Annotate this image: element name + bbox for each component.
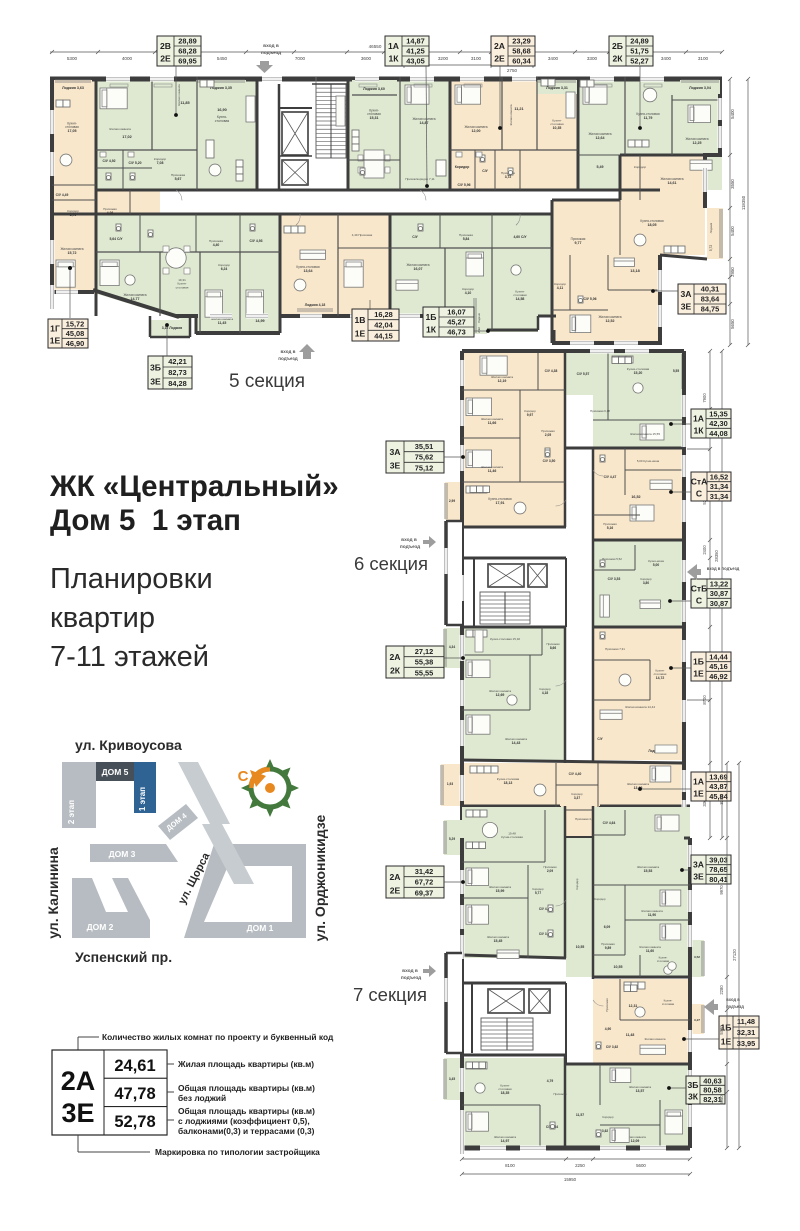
svg-text:ДОМ 5: ДОМ 5: [102, 767, 129, 777]
svg-text:3Е: 3Е: [693, 872, 704, 882]
svg-text:18,35: 18,35: [501, 1091, 510, 1095]
svg-text:67,72: 67,72: [415, 878, 434, 887]
svg-text:11,66: 11,66: [488, 421, 497, 425]
svg-text:31,34: 31,34: [710, 482, 729, 491]
svg-text:46,92: 46,92: [709, 672, 728, 681]
svg-text:С/У 4,93: С/У 4,93: [249, 239, 262, 243]
svg-text:39,03: 39,03: [709, 855, 728, 864]
svg-text:вход в: вход в: [401, 538, 417, 543]
svg-text:24,89: 24,89: [630, 37, 649, 46]
svg-text:Общая площадь квартиры (кв.м): Общая площадь квартиры (кв.м): [178, 1083, 315, 1093]
svg-text:16,52: 16,52: [710, 472, 729, 481]
svg-text:52,78: 52,78: [114, 1113, 155, 1131]
svg-text:2Е: 2Е: [390, 886, 401, 896]
svg-text:15,35: 15,35: [709, 409, 728, 418]
svg-text:6,09: 6,09: [604, 925, 611, 929]
svg-text:Успенский пр.: Успенский пр.: [75, 949, 172, 965]
svg-text:3600: 3600: [361, 56, 372, 61]
svg-text:Коридор: Коридор: [575, 878, 579, 889]
svg-text:15,72: 15,72: [66, 319, 85, 328]
svg-text:3,45: 3,45: [449, 1077, 455, 1081]
svg-text:С: С: [696, 489, 702, 499]
svg-text:7-11 этажей: 7-11 этажей: [50, 641, 209, 673]
svg-text:3200: 3200: [438, 56, 449, 61]
svg-text:подъезд: подъезд: [401, 976, 421, 981]
svg-text:75,62: 75,62: [415, 453, 434, 462]
svg-text:5,55: 5,55: [673, 369, 679, 373]
svg-text:9,97: 9,97: [527, 413, 534, 417]
svg-text:4,79: 4,79: [547, 1079, 554, 1083]
svg-text:ЖК «Центральный»: ЖК «Центральный»: [49, 470, 339, 503]
svg-text:11,85: 11,85: [180, 101, 189, 105]
svg-text:2,05: 2,05: [545, 433, 552, 437]
svg-text:7,08: 7,08: [157, 161, 164, 165]
svg-text:Общая площадь квартиры (кв.м): Общая площадь квартиры (кв.м): [178, 1106, 315, 1116]
svg-text:5780: 5780: [719, 1025, 724, 1035]
svg-text:10,55: 10,55: [614, 965, 623, 969]
svg-text:1К: 1К: [426, 325, 437, 335]
svg-text:69,37: 69,37: [415, 888, 434, 897]
svg-text:41,25: 41,25: [406, 47, 425, 56]
svg-text:С/У 5,20: С/У 5,20: [128, 161, 141, 165]
svg-text:столовая: столовая: [215, 119, 230, 123]
svg-text:3А: 3А: [693, 859, 704, 869]
svg-text:подъезд: подъезд: [278, 356, 298, 361]
svg-text:84,75: 84,75: [701, 305, 720, 314]
svg-text:2Е: 2Е: [494, 54, 505, 64]
svg-text:3100: 3100: [698, 56, 709, 61]
svg-text:12,00: 12,00: [472, 129, 481, 133]
svg-text:84,28: 84,28: [168, 379, 187, 388]
svg-text:12,31: 12,31: [629, 1004, 638, 1008]
svg-text:17,91: 17,91: [496, 501, 505, 505]
svg-text:15,45: 15,45: [494, 939, 503, 943]
svg-text:С/У 4,47: С/У 4,47: [604, 475, 617, 479]
svg-text:118350: 118350: [741, 195, 746, 210]
svg-text:51,75: 51,75: [630, 47, 649, 56]
svg-text:Прихожая: Прихожая: [605, 998, 609, 1012]
svg-text:80,41: 80,41: [709, 875, 728, 884]
svg-text:1Б: 1Б: [426, 312, 437, 322]
svg-text:3300: 3300: [719, 795, 724, 805]
svg-text:Прихожая 6,18: Прихожая 6,18: [590, 409, 610, 413]
svg-text:14,72: 14,72: [656, 676, 665, 680]
svg-text:1Е: 1Е: [355, 329, 366, 339]
svg-text:4,40: 4,40: [213, 243, 220, 247]
svg-text:11,90: 11,90: [648, 913, 656, 917]
svg-text:27120: 27120: [732, 949, 737, 961]
svg-text:14,87: 14,87: [406, 37, 425, 46]
svg-text:1А: 1А: [693, 413, 704, 423]
svg-text:4,10: 4,10: [465, 291, 472, 295]
svg-text:80,58: 80,58: [703, 1086, 722, 1095]
svg-text:Лоджия 3,63: Лоджия 3,63: [62, 86, 84, 90]
svg-text:1Е: 1Е: [693, 669, 704, 679]
svg-text:С/У: С/У: [412, 235, 418, 239]
svg-text:С/У 4,40: С/У 4,40: [569, 772, 582, 776]
svg-text:15,53: 15,53: [644, 869, 653, 873]
svg-text:5,00 Кухня-ниша: 5,00 Кухня-ниша: [637, 459, 660, 463]
svg-text:столовая: столовая: [662, 1002, 675, 1006]
svg-text:10,55: 10,55: [576, 945, 585, 949]
svg-text:8,66: 8,66: [550, 646, 556, 650]
svg-text:11,48: 11,48: [737, 1017, 755, 1026]
svg-text:3,10 Лоджия: 3,10 Лоджия: [162, 326, 183, 330]
svg-text:69,95: 69,95: [178, 57, 197, 66]
svg-text:2А: 2А: [494, 41, 505, 51]
svg-text:8700: 8700: [702, 695, 707, 705]
svg-text:5,00: 5,00: [653, 563, 660, 567]
svg-text:Лоджия 3,31: Лоджия 3,31: [546, 86, 568, 90]
svg-text:12,09: 12,09: [631, 1139, 640, 1143]
svg-text:Кухня-столовая 15,32: Кухня-столовая 15,32: [490, 637, 520, 641]
svg-text:Лоджия: Лоджия: [709, 222, 713, 233]
svg-text:13,69: 13,69: [709, 772, 728, 781]
svg-text:30,87: 30,87: [710, 589, 729, 598]
svg-text:2280: 2280: [719, 985, 724, 995]
svg-text:45,27: 45,27: [447, 318, 466, 327]
svg-text:СтА: СтА: [691, 476, 708, 486]
svg-text:столовая: столовая: [176, 285, 189, 289]
svg-text:16,07: 16,07: [414, 267, 423, 271]
svg-text:2К: 2К: [612, 54, 623, 64]
svg-text:4,90: 4,90: [605, 1027, 612, 1031]
svg-text:4,49 Прихожая: 4,49 Прихожая: [352, 233, 373, 237]
svg-text:Прихож/коридор 7,11: Прихож/коридор 7,11: [405, 177, 435, 181]
svg-text:47,78: 47,78: [114, 1085, 155, 1103]
svg-text:3400: 3400: [661, 56, 672, 61]
svg-text:С/У 5,06: С/У 5,06: [583, 297, 596, 301]
svg-text:вход в: вход в: [280, 349, 295, 354]
svg-text:Прихожая: Прихожая: [554, 1092, 567, 1096]
svg-text:подъезд: подъезд: [400, 545, 420, 550]
svg-text:1А: 1А: [388, 41, 399, 51]
svg-text:ул. Кривоусова: ул. Кривоусова: [75, 737, 182, 753]
svg-text:23,29: 23,29: [512, 37, 531, 46]
svg-text:С/У 4,38: С/У 4,38: [545, 369, 558, 373]
svg-text:3Б: 3Б: [150, 362, 161, 372]
svg-text:7900: 7900: [702, 393, 707, 403]
svg-text:15,31: 15,31: [370, 116, 379, 120]
svg-text:3Е: 3Е: [150, 377, 161, 387]
svg-text:1К: 1К: [388, 54, 399, 64]
svg-text:ДОМ 1: ДОМ 1: [247, 923, 274, 933]
svg-text:15,72: 15,72: [68, 251, 77, 255]
svg-text:2К: 2К: [390, 666, 401, 676]
svg-text:2750: 2750: [507, 68, 518, 73]
svg-text:3,52: 3,52: [694, 955, 700, 959]
svg-text:5950: 5950: [719, 1095, 724, 1105]
svg-text:14,43: 14,43: [512, 741, 521, 745]
svg-text:Коридор: Коридор: [602, 1115, 613, 1119]
svg-text:13,57: 13,57: [636, 1089, 645, 1093]
svg-text:С: С: [238, 768, 249, 785]
svg-text:3,72: 3,72: [505, 175, 512, 179]
svg-text:5,84: 5,84: [463, 237, 470, 241]
svg-text:3400: 3400: [548, 56, 559, 61]
svg-text:6,24: 6,24: [221, 267, 228, 271]
svg-text:7 секция: 7 секция: [353, 984, 427, 1005]
svg-text:11,48: 11,48: [626, 1033, 635, 1037]
svg-text:Лоджия 3,04: Лоджия 3,04: [689, 86, 711, 90]
svg-text:16,90: 16,90: [217, 108, 227, 112]
svg-text:2В: 2В: [160, 41, 171, 51]
svg-text:43,05: 43,05: [406, 57, 425, 66]
svg-text:40,31: 40,31: [701, 285, 720, 294]
svg-text:Лоджия: Лоджия: [477, 313, 481, 323]
svg-text:Лоджия 3,60: Лоджия 3,60: [363, 87, 385, 91]
svg-text:С/У 5,96: С/У 5,96: [457, 183, 470, 187]
svg-text:18,13: 18,13: [504, 781, 513, 785]
svg-text:1Е: 1Е: [50, 336, 61, 346]
svg-text:Количество жилых комнат по про: Количество жилых комнат по проекту и бук…: [102, 1032, 334, 1042]
svg-text:5400: 5400: [730, 226, 735, 236]
svg-text:14,61: 14,61: [668, 181, 677, 185]
svg-text:46550: 46550: [369, 44, 382, 49]
svg-text:14,58: 14,58: [516, 297, 525, 301]
svg-text:3300: 3300: [587, 56, 598, 61]
svg-text:4,26: 4,26: [107, 211, 114, 215]
svg-text:9,77: 9,77: [575, 241, 582, 245]
svg-text:вход в: вход в: [263, 44, 279, 49]
svg-text:44,08: 44,08: [709, 429, 728, 438]
svg-text:без лоджий: без лоджий: [178, 1093, 226, 1103]
svg-text:5300: 5300: [67, 56, 78, 61]
svg-text:3Е: 3Е: [390, 461, 401, 471]
svg-text:Жилая комната: Жилая комната: [645, 1037, 666, 1041]
svg-text:28350: 28350: [714, 550, 719, 562]
svg-text:3Б: 3Б: [688, 1080, 699, 1090]
svg-text:16,07: 16,07: [447, 308, 466, 317]
svg-text:8100: 8100: [505, 1163, 515, 1168]
svg-text:Планировки: Планировки: [50, 563, 213, 595]
svg-text:2250: 2250: [575, 1163, 585, 1168]
svg-text:квартир: квартир: [50, 602, 155, 634]
svg-text:балконами(0,3) и террасами (0,: балконами(0,3) и террасами (0,3): [178, 1126, 315, 1136]
svg-text:2А: 2А: [390, 652, 401, 662]
svg-text:46,90: 46,90: [66, 339, 85, 348]
svg-text:42,30: 42,30: [709, 419, 728, 428]
svg-text:2,09: 2,09: [547, 869, 553, 873]
svg-text:4,18: 4,18: [542, 691, 548, 695]
svg-text:2Е: 2Е: [160, 54, 171, 64]
svg-text:82,73: 82,73: [168, 368, 187, 377]
svg-text:С/У 3,50: С/У 3,50: [543, 459, 556, 463]
svg-text:31,42: 31,42: [415, 867, 434, 876]
svg-text:11,57: 11,57: [576, 1113, 584, 1117]
svg-text:40,63: 40,63: [703, 1076, 722, 1085]
svg-text:13,22: 13,22: [710, 579, 729, 588]
svg-text:С/У 4,92: С/У 4,92: [102, 159, 115, 163]
svg-text:31,34: 31,34: [710, 492, 729, 501]
svg-text:4,60 С/У: 4,60 С/У: [513, 235, 527, 239]
svg-text:5400: 5400: [730, 109, 735, 119]
svg-text:18,05: 18,05: [648, 223, 657, 227]
svg-text:12,69: 12,69: [496, 693, 505, 697]
svg-text:3,80: 3,80: [643, 581, 649, 585]
svg-text:2 этап: 2 этап: [67, 800, 76, 824]
svg-text:3А: 3А: [390, 447, 401, 457]
svg-text:2950: 2950: [730, 267, 735, 277]
svg-text:12,52: 12,52: [606, 319, 615, 323]
svg-text:Дом 5 1 этап: Дом 5 1 этап: [50, 504, 241, 537]
svg-text:13,18: 13,18: [630, 269, 640, 273]
svg-text:С/У 3,53: С/У 3,53: [608, 577, 621, 581]
svg-text:столовая: столовая: [657, 959, 670, 963]
svg-text:2,76: 2,76: [70, 213, 77, 217]
svg-text:15,99: 15,99: [496, 889, 505, 893]
svg-text:3А: 3А: [681, 289, 692, 299]
svg-text:14,77: 14,77: [131, 297, 140, 301]
svg-text:1 этап: 1 этап: [138, 787, 147, 811]
svg-text:45,08: 45,08: [66, 329, 85, 338]
svg-text:подъезд: подъезд: [261, 51, 281, 56]
svg-text:С/У: С/У: [482, 169, 488, 173]
svg-text:2,92: 2,92: [477, 327, 481, 333]
svg-text:68,28: 68,28: [178, 47, 197, 56]
svg-text:Жилая площадь квартиры (кв.м): Жилая площадь квартиры (кв.м): [177, 1059, 314, 1069]
svg-text:11,21: 11,21: [514, 107, 523, 111]
svg-text:43,87: 43,87: [709, 782, 728, 791]
svg-text:Коридор: Коридор: [594, 897, 605, 901]
svg-text:35,51: 35,51: [415, 442, 434, 451]
svg-text:33,95: 33,95: [737, 1039, 756, 1048]
svg-text:Кухня-столовая: Кухня-столовая: [501, 835, 523, 839]
svg-text:30,87: 30,87: [710, 599, 729, 608]
svg-text:5,29: 5,29: [449, 837, 455, 841]
svg-text:С/У 4,64: С/У 4,64: [603, 821, 616, 825]
svg-text:1,93: 1,93: [447, 782, 453, 786]
svg-text:Жилая комната 15,55: Жилая комната 15,55: [630, 432, 660, 436]
svg-text:ул. Калинина: ул. Калинина: [45, 847, 61, 939]
svg-text:11,45: 11,45: [218, 321, 227, 325]
svg-text:ДОМ 2: ДОМ 2: [87, 922, 114, 932]
svg-text:3,37: 3,37: [574, 796, 580, 800]
svg-text:5450: 5450: [217, 56, 228, 61]
svg-text:28,89: 28,89: [178, 37, 197, 46]
svg-text:11,46: 11,46: [488, 469, 497, 473]
svg-text:С/У 3,62: С/У 3,62: [606, 1045, 618, 1049]
svg-text:вход в подъезд: вход в подъезд: [707, 566, 740, 571]
svg-text:75,12: 75,12: [415, 463, 434, 472]
svg-text:3,27: 3,27: [694, 1018, 700, 1022]
svg-text:5,77: 5,77: [535, 891, 541, 895]
svg-text:1В: 1В: [355, 315, 366, 325]
svg-text:Маркировка по типологии зас: Маркировка по типологии застройщика: [155, 1147, 320, 1157]
svg-text:32,31: 32,31: [737, 1028, 756, 1037]
svg-text:14,44: 14,44: [709, 652, 728, 661]
svg-text:3Е: 3Е: [681, 302, 692, 312]
svg-text:с лоджиями (коэффициент 0,5),: с лоджиями (коэффициент 0,5),: [178, 1116, 310, 1126]
svg-text:1Г: 1Г: [50, 323, 60, 333]
svg-text:Жилая комната: Жилая комната: [109, 127, 131, 131]
svg-text:6 секция: 6 секция: [354, 553, 428, 574]
svg-text:60,34: 60,34: [512, 57, 531, 66]
svg-text:44,15: 44,15: [374, 331, 393, 340]
svg-text:Жилая комната: Жилая комната: [509, 104, 513, 125]
svg-text:9,89: 9,89: [605, 946, 612, 950]
svg-text:5,64 С/У: 5,64 С/У: [109, 237, 123, 241]
svg-text:вход в: вход в: [402, 969, 418, 974]
svg-text:24,61: 24,61: [114, 1057, 155, 1075]
svg-text:СтБ: СтБ: [691, 583, 708, 593]
svg-text:58,68: 58,68: [512, 47, 531, 56]
svg-text:13,64: 13,64: [304, 269, 313, 273]
svg-text:5650: 5650: [730, 319, 735, 329]
svg-text:12,64: 12,64: [596, 136, 605, 140]
svg-text:1А: 1А: [693, 776, 704, 786]
svg-text:14,97: 14,97: [501, 1139, 510, 1143]
svg-text:16,52: 16,52: [631, 495, 640, 499]
svg-text:3Е: 3Е: [61, 1098, 94, 1128]
svg-text:5600: 5600: [636, 1163, 646, 1168]
svg-text:Жилая комната 14,44: Жилая комната 14,44: [625, 705, 655, 709]
svg-text:17,02: 17,02: [122, 135, 132, 139]
svg-text:ДОМ 3: ДОМ 3: [109, 849, 136, 859]
svg-text:вход в: вход в: [726, 997, 740, 1002]
svg-text:3550: 3550: [730, 179, 735, 189]
svg-text:42,04: 42,04: [374, 321, 393, 330]
svg-text:45,16: 45,16: [709, 662, 728, 671]
svg-text:55,55: 55,55: [415, 668, 434, 677]
svg-text:2400: 2400: [702, 545, 707, 555]
svg-text:15950: 15950: [564, 1177, 577, 1182]
svg-text:1Б: 1Б: [693, 656, 704, 666]
svg-text:78,65: 78,65: [709, 865, 728, 874]
svg-text:4,34: 4,34: [449, 645, 455, 649]
svg-text:55,38: 55,38: [415, 658, 434, 667]
svg-text:2Б: 2Б: [612, 41, 623, 51]
svg-text:Коридор: Коридор: [455, 165, 470, 169]
svg-text:52,27: 52,27: [630, 57, 649, 66]
svg-text:11,79: 11,79: [644, 116, 653, 120]
svg-text:3К: 3К: [688, 1092, 699, 1102]
svg-text:5,49: 5,49: [597, 165, 604, 169]
svg-text:11,60: 11,60: [646, 949, 654, 953]
svg-text:5,67: 5,67: [175, 177, 182, 181]
svg-text:17,05: 17,05: [68, 129, 77, 133]
svg-text:С/У 4,49: С/У 4,49: [56, 193, 69, 197]
svg-text:2А: 2А: [61, 1066, 96, 1096]
svg-text:1Е: 1Е: [693, 789, 704, 799]
svg-text:4,11: 4,11: [557, 286, 564, 290]
svg-text:Прихожая 7,31: Прихожая 7,31: [605, 647, 625, 651]
svg-text:83,64: 83,64: [701, 295, 720, 304]
svg-text:9970: 9970: [719, 885, 724, 895]
svg-text:1Е: 1Е: [721, 1037, 732, 1047]
svg-text:7000: 7000: [295, 56, 306, 61]
svg-text:С: С: [696, 596, 702, 606]
svg-text:5,16: 5,16: [607, 526, 614, 530]
svg-text:С/У 5,57: С/У 5,57: [577, 372, 590, 376]
svg-text:16,28: 16,28: [374, 310, 393, 319]
svg-text:46,73: 46,73: [447, 328, 466, 337]
svg-text:2А: 2А: [390, 872, 401, 882]
svg-text:42,21: 42,21: [168, 357, 187, 366]
svg-text:14,87: 14,87: [420, 121, 429, 125]
svg-text:5 секция: 5 секция: [229, 371, 305, 392]
svg-text:27,12: 27,12: [415, 647, 434, 656]
svg-text:14,99: 14,99: [255, 319, 264, 323]
svg-text:3100: 3100: [471, 56, 482, 61]
svg-text:Лоджия 4,18: Лоджия 4,18: [305, 303, 326, 307]
svg-text:1К: 1К: [693, 426, 704, 436]
svg-text:10,35: 10,35: [553, 126, 562, 130]
svg-text:12,25: 12,25: [693, 141, 702, 145]
svg-text:5,72: 5,72: [709, 245, 713, 251]
svg-text:12,19: 12,19: [498, 379, 507, 383]
svg-text:2,99: 2,99: [449, 499, 455, 503]
